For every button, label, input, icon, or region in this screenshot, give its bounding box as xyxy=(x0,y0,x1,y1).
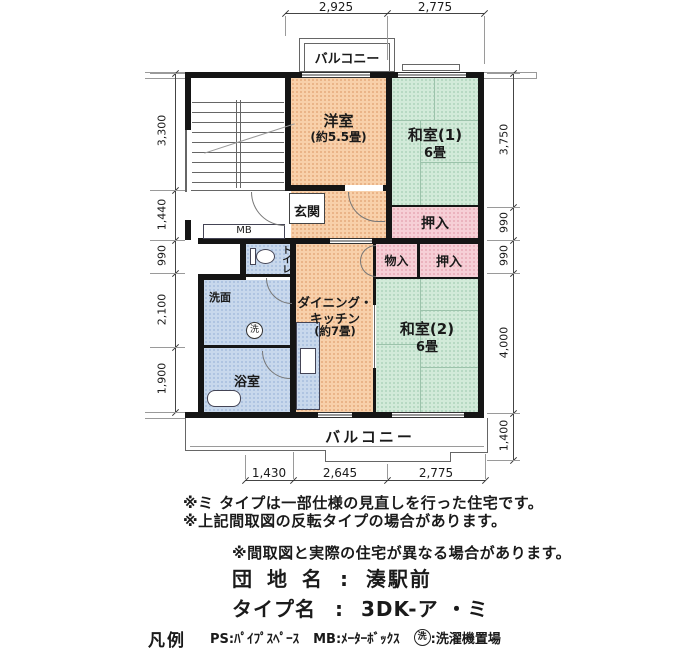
railing-line xyxy=(402,70,460,71)
dim-right-1: 3,750 xyxy=(498,110,511,170)
legend-mb: MB:ﾒｰﾀｰﾎﾞｯｸｽ xyxy=(313,628,400,647)
dim-bottom-1: 1,430 xyxy=(239,466,299,480)
laundry-symbol: 洗 xyxy=(246,322,263,339)
legend-items: PS:ﾊﾟｲﾌﾟｽﾍﾟｰｽ MB:ﾒｰﾀｰﾎﾞｯｸｽ 洗:洗濯機置場 xyxy=(210,628,501,647)
stairwell-left-line xyxy=(185,130,187,192)
tatami-line xyxy=(392,120,478,121)
dim-right-3: 990 xyxy=(498,226,511,286)
dim-right-4: 4,000 xyxy=(498,313,511,373)
toilet-bowl-icon xyxy=(256,249,275,264)
dim-bottom-3: 2,775 xyxy=(406,466,466,480)
stair-break-line xyxy=(204,123,295,153)
balcony-bottom-outline xyxy=(450,452,451,462)
tatami-line xyxy=(420,367,478,368)
dim-bottom-2: 2,645 xyxy=(310,466,370,480)
extension-line xyxy=(387,16,388,60)
stair-center-rail xyxy=(240,100,241,188)
genkan-label: 玄関 xyxy=(289,201,325,220)
balcony-bottom-outline xyxy=(450,452,487,453)
extension-line xyxy=(484,16,485,64)
laundry-circle-icon: 洗 xyxy=(414,629,431,646)
oshiire-upper-label: 押入 xyxy=(392,213,478,233)
note-line-3: ※間取図と実際の住宅が異なる場合があります。 xyxy=(232,542,571,563)
window-dk xyxy=(318,412,352,418)
extension-line xyxy=(150,73,185,74)
bathtub-icon xyxy=(207,390,241,407)
oshiire-lower-label: 押入 xyxy=(420,251,478,270)
window-washitsu-2 xyxy=(392,412,464,418)
balcony-bottom-outline xyxy=(185,450,326,451)
stair-center-rail xyxy=(236,100,237,188)
balcony-bottom-outline xyxy=(325,461,451,462)
legend-laundry: 洗:洗濯機置場 xyxy=(414,628,501,647)
wall-bottom-b xyxy=(352,412,392,418)
sliding-door-hall-dk xyxy=(330,238,372,244)
type-name-colon: : xyxy=(335,597,343,621)
senmen-label: 洗面 xyxy=(209,289,231,305)
dk-label-3: (約7畳) xyxy=(290,323,380,339)
balcony-bottom-outline xyxy=(185,418,186,450)
stair-tread xyxy=(192,162,284,163)
railing-end xyxy=(459,64,460,71)
legend-laundry-text: :洗濯機置場 xyxy=(431,628,501,647)
stair-tread xyxy=(192,172,284,173)
meter-box-label: MB xyxy=(203,225,285,236)
type-name-value: 3DK-ア ・ミ xyxy=(361,593,489,622)
stairwell-top-wall xyxy=(185,72,285,78)
legend-title: 凡例 xyxy=(148,626,186,650)
toilet-label: トイレ xyxy=(278,245,292,275)
railing-end xyxy=(402,64,403,71)
dim-line-left xyxy=(175,73,176,412)
site-name-label: 団 地 名 xyxy=(232,563,326,592)
bath-label: 浴室 xyxy=(204,371,290,390)
wall-segment xyxy=(370,72,398,78)
window-washitsu-1 xyxy=(398,72,466,78)
legend-ps: PS:ﾊﾟｲﾌﾟｽﾍﾟｰｽ xyxy=(210,628,299,647)
dim-top-1: 2,925 xyxy=(306,0,366,14)
stair-tread xyxy=(192,112,284,113)
dim-right-5: 1,400 xyxy=(498,406,511,466)
note-line-2: ※上記間取図の反転タイプの場合があります。 xyxy=(183,510,507,531)
neighbor-line xyxy=(145,78,185,79)
railing-line xyxy=(402,64,460,65)
entry-door-arc xyxy=(251,192,285,226)
site-name-colon: : xyxy=(340,567,348,591)
extension-line xyxy=(487,73,520,74)
wall-segment xyxy=(198,274,246,280)
dim-top-2: 2,775 xyxy=(405,0,465,14)
dim-left-4: 2,100 xyxy=(156,280,169,340)
partition-closet-bottom xyxy=(376,277,478,279)
wall-segment xyxy=(240,238,246,277)
wall-right xyxy=(478,72,484,418)
wall-segment xyxy=(285,185,345,191)
window-yoshitsu xyxy=(302,72,370,78)
dim-left-3: 990 xyxy=(156,226,169,286)
dim-left-1: 3,300 xyxy=(156,101,169,161)
tatami-line xyxy=(434,78,435,120)
kitchen-sink-icon xyxy=(300,348,316,374)
yoshitsu-size: (約5.5畳) xyxy=(291,128,386,145)
balcony-top-label: バルコニー xyxy=(299,48,395,67)
extension-line xyxy=(285,16,286,36)
wall-bottom-c xyxy=(464,412,484,418)
wall-dk-washitsu2-b xyxy=(373,368,376,412)
dim-left-5: 1,900 xyxy=(156,349,169,409)
dim-line-bottom xyxy=(245,480,485,481)
extension-line xyxy=(485,454,486,479)
tatami-line xyxy=(420,310,478,311)
washitsu2-size: 6畳 xyxy=(376,336,478,355)
neighbor-line xyxy=(145,418,185,419)
extension-line xyxy=(387,464,388,479)
balcony-bottom-label: バルコニー xyxy=(310,426,430,447)
partition-senmen-bath xyxy=(204,345,290,348)
extension-line xyxy=(150,412,185,413)
neighbor-line xyxy=(484,78,537,79)
stair-tread xyxy=(192,122,284,123)
wall-segment xyxy=(290,238,484,244)
tatami-line xyxy=(420,162,478,163)
partition-oshiire-top xyxy=(392,205,478,207)
floor-plan-page: MB 玄関 洗 バルコニー バルコニー 洋室 (約5.5畳) 和室(1) 6畳 … xyxy=(0,0,700,650)
site-name-value: 湊駅前 xyxy=(366,563,432,592)
dim-line-right xyxy=(513,73,514,460)
wall-bottom-a xyxy=(185,412,318,418)
porch-line xyxy=(191,190,285,191)
neighbor-line xyxy=(536,72,537,79)
site-name-row: 団 地 名 : 湊駅前 xyxy=(232,563,432,592)
stair-tread xyxy=(192,102,284,103)
type-name-row: タイプ名 : 3DK-ア ・ミ xyxy=(232,593,489,622)
stairwell-left-wall xyxy=(185,72,191,130)
type-name-label: タイプ名 xyxy=(232,593,316,622)
washitsu1-size: 6畳 xyxy=(392,142,478,161)
wall-segment xyxy=(383,185,392,191)
stair-tread xyxy=(192,182,284,183)
balcony-bottom-outline xyxy=(487,418,488,453)
stairwell-left-wall-lower xyxy=(185,220,191,240)
monoire-label: 物入 xyxy=(376,252,417,269)
